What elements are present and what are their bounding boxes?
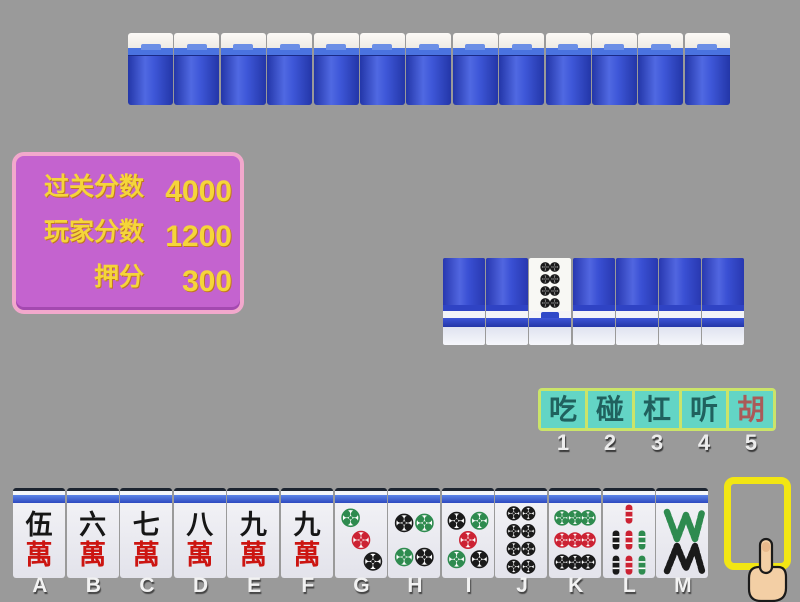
- player-score-label: 玩家分数: [16, 209, 144, 248]
- hu-button[interactable]: 胡: [729, 391, 773, 428]
- hand-tile-B-6-wan[interactable]: 六萬: [67, 488, 119, 578]
- hand-tile-F-9-wan[interactable]: 九萬: [281, 488, 333, 578]
- score-panel: 过关分数 4000 玩家分数 1200 押分 300: [12, 152, 244, 314]
- hand-label-F: F: [281, 574, 335, 598]
- opponent-tile-back: [267, 33, 312, 105]
- opponent-tile-back: [638, 33, 683, 105]
- bet-score-label: 押分: [16, 254, 144, 293]
- hand-label-K: K: [549, 574, 603, 598]
- hand-tile-M-8-bamboo[interactable]: [656, 488, 708, 578]
- opponent-tile-back: [221, 33, 266, 105]
- hotkey-number: 3: [635, 430, 679, 456]
- hand-label-B: B: [67, 574, 121, 598]
- hand-label-C: C: [120, 574, 174, 598]
- opponent-tile-back: [406, 33, 451, 105]
- wall-tile-back: [659, 258, 701, 345]
- hand-tile-C-7-wan[interactable]: 七萬: [120, 488, 172, 578]
- opponent-tile-back: [453, 33, 498, 105]
- pass-score-label: 过关分数: [16, 164, 144, 203]
- hand-tile-A-5-wan[interactable]: 伍萬: [13, 488, 65, 578]
- opponent-tile-back: [546, 33, 591, 105]
- hand-label-H: H: [388, 574, 442, 598]
- hotkey-number: 4: [682, 430, 726, 456]
- hand-tile-H-4-dots[interactable]: [388, 488, 440, 578]
- opponent-tile-back: [360, 33, 405, 105]
- player-hand: 伍萬六萬七萬八萬九萬九萬: [13, 488, 708, 578]
- hand-tile-I-5-dots[interactable]: [442, 488, 494, 578]
- ting-button[interactable]: 听: [682, 391, 726, 428]
- hand-position-labels: ABCDEFGHIJKLM: [13, 574, 710, 598]
- score-row: 玩家分数 1200: [16, 209, 240, 254]
- hand-label-E: E: [227, 574, 281, 598]
- opponent-tile-back: [128, 33, 173, 105]
- opponent-tile-back: [174, 33, 219, 105]
- hand-label-G: G: [335, 574, 389, 598]
- hotkey-number: 1: [541, 430, 585, 456]
- hand-tile-K-9-dots[interactable]: [549, 488, 601, 578]
- wall-tile-back: [486, 258, 528, 345]
- score-row: 押分 300: [16, 254, 240, 299]
- chi-button[interactable]: 吃: [541, 391, 585, 428]
- hotkey-number: 5: [729, 430, 773, 456]
- wall-tile-back: [443, 258, 485, 345]
- opponent-tile-back: [314, 33, 359, 105]
- score-row: 过关分数 4000: [16, 164, 240, 209]
- revealed-tile-8-dots: [529, 258, 571, 345]
- opponent-tile-back: [499, 33, 544, 105]
- hand-label-D: D: [174, 574, 228, 598]
- hand-label-A: A: [13, 574, 67, 598]
- hand-label-L: L: [603, 574, 657, 598]
- opponent-wall: [128, 33, 730, 105]
- hand-label-M: M: [656, 574, 710, 598]
- pass-score-value: 4000: [144, 164, 232, 209]
- peng-button[interactable]: 碰: [588, 391, 632, 428]
- hand-label-J: J: [495, 574, 549, 598]
- hand-label-I: I: [442, 574, 496, 598]
- right-player-wall: [443, 258, 744, 345]
- wall-tile-back: [573, 258, 615, 345]
- pointing-hand-cursor: [741, 536, 789, 602]
- action-bar: 吃 碰 杠 听 胡: [538, 388, 776, 431]
- gang-button[interactable]: 杠: [635, 391, 679, 428]
- hand-tile-J-8-dots[interactable]: [495, 488, 547, 578]
- bet-score-value: 300: [144, 254, 232, 299]
- opponent-tile-back: [685, 33, 730, 105]
- opponent-tile-back: [592, 33, 637, 105]
- hand-tile-E-9-wan[interactable]: 九萬: [227, 488, 279, 578]
- hand-tile-L-7-bamboo[interactable]: [603, 488, 655, 578]
- hand-tile-G-3-dots[interactable]: [335, 488, 387, 578]
- wall-tile-back: [702, 258, 744, 345]
- action-hotkeys: 1 2 3 4 5: [538, 430, 776, 456]
- hand-tile-D-8-wan[interactable]: 八萬: [174, 488, 226, 578]
- hotkey-number: 2: [588, 430, 632, 456]
- player-score-value: 1200: [144, 209, 232, 254]
- wall-tile-back: [616, 258, 658, 345]
